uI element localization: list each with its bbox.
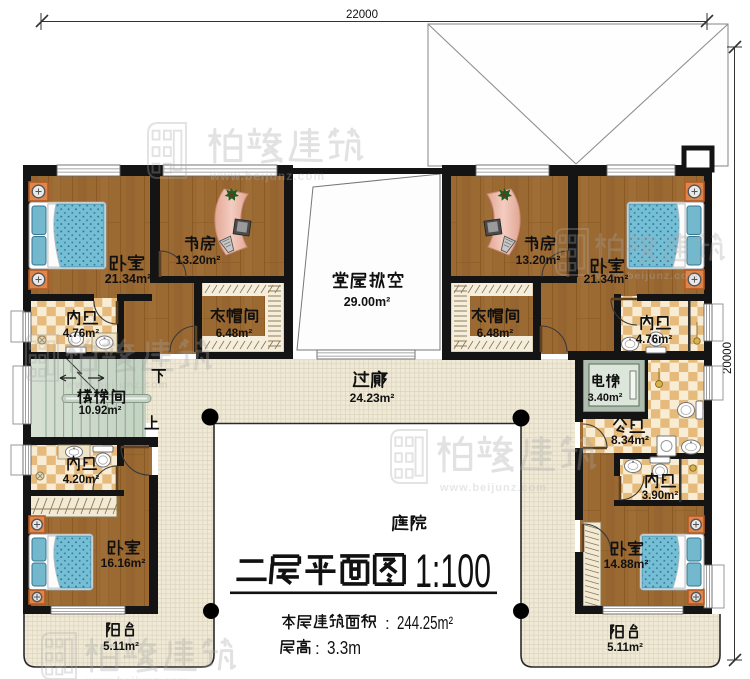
svg-text:www.beijunz.com: www.beijunz.com [209,169,325,183]
svg-text:14.88m²: 14.88m² [604,557,649,571]
svg-text:3.40m²: 3.40m² [588,392,623,404]
svg-text:20000: 20000 [722,342,734,374]
svg-text:244.25m²: 244.25m² [397,613,453,633]
svg-text:www.beijunz.com: www.beijunz.com [85,675,189,679]
svg-text:24.23m²: 24.23m² [350,391,395,405]
svg-text:6.48m²: 6.48m² [216,328,253,340]
svg-text:4.76m²: 4.76m² [63,328,100,340]
svg-text:21.34m²: 21.34m² [105,272,152,286]
svg-text:22000: 22000 [346,9,378,21]
svg-text:3.3m: 3.3m [327,638,361,658]
svg-text:13.20m²: 13.20m² [176,253,221,267]
svg-text:21.34m²: 21.34m² [584,272,629,286]
svg-text:4.76m²: 4.76m² [636,334,673,346]
svg-text:6.48m²: 6.48m² [477,328,514,340]
svg-text:5.11m²: 5.11m² [103,641,139,653]
svg-text::: : [315,639,320,658]
svg-text:4.20m²: 4.20m² [63,474,100,486]
svg-text::: : [385,614,390,633]
svg-text:16.16m²: 16.16m² [101,556,146,570]
svg-text:3.90m²: 3.90m² [642,490,679,502]
svg-text:5.11m²: 5.11m² [607,642,643,654]
svg-text:8.34m²: 8.34m² [611,433,649,447]
svg-text:13.20m²: 13.20m² [516,253,561,267]
svg-text:29.00m²: 29.00m² [344,295,391,309]
svg-text:1:100: 1:100 [415,544,491,597]
svg-text:10.92m²: 10.92m² [79,405,122,417]
svg-text:www.beijunz.com: www.beijunz.com [439,482,547,494]
